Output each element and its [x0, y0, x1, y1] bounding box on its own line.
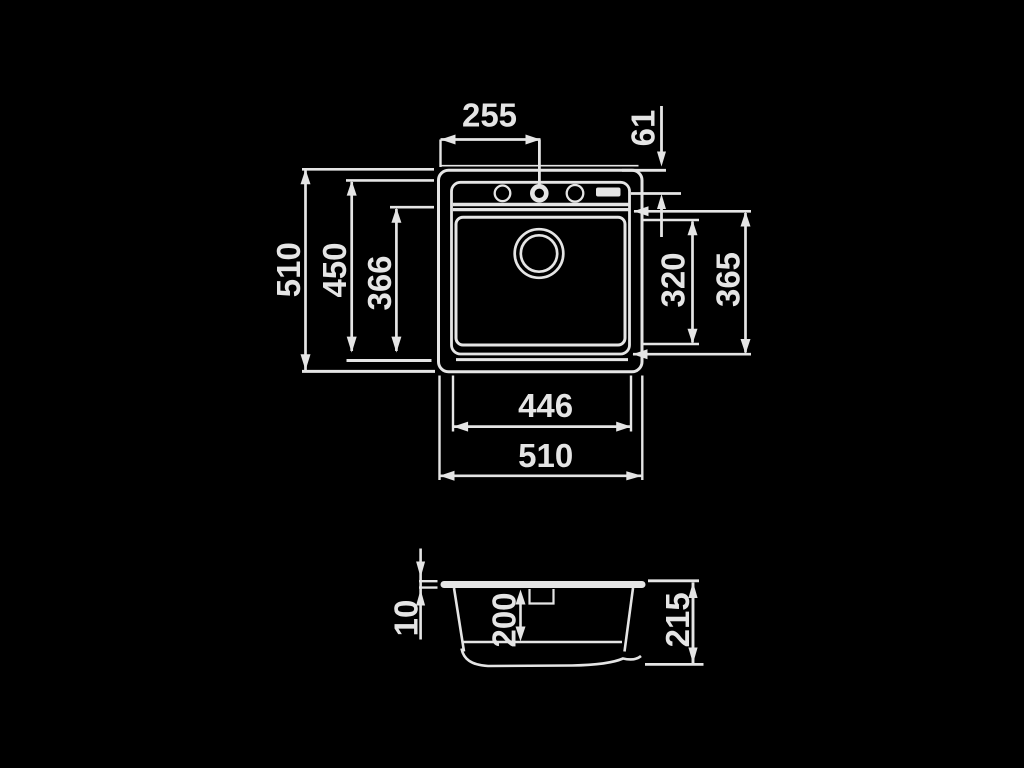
svg-text:61: 61 [624, 110, 661, 147]
svg-text:450: 450 [316, 242, 353, 297]
svg-text:255: 255 [462, 97, 517, 134]
svg-text:215: 215 [659, 592, 696, 647]
svg-text:366: 366 [361, 255, 398, 310]
svg-text:365: 365 [710, 252, 747, 307]
svg-text:510: 510 [518, 437, 573, 474]
svg-text:320: 320 [655, 252, 692, 307]
svg-text:446: 446 [518, 387, 573, 424]
svg-text:510: 510 [270, 242, 307, 297]
